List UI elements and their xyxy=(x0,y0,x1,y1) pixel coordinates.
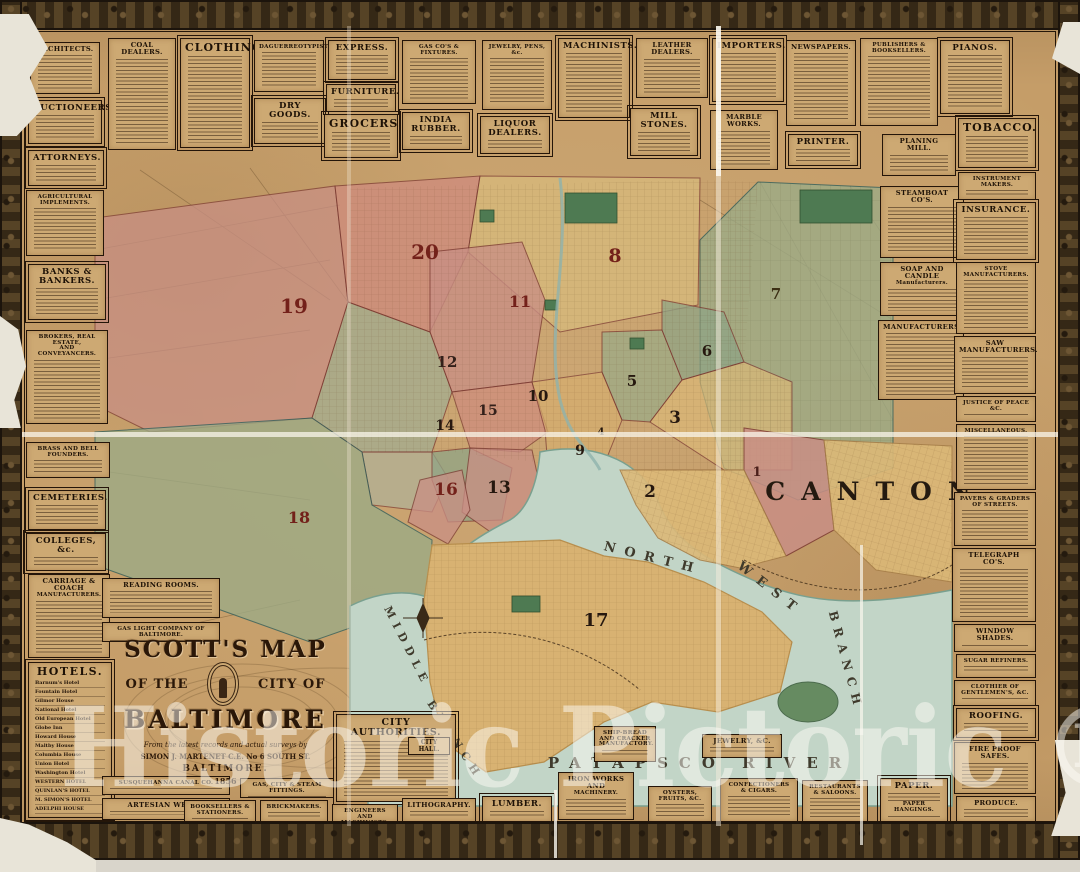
ward-number-19: 19 xyxy=(280,294,308,318)
ad-panel-title: PIANOS. xyxy=(945,44,1005,53)
ad-panel-title: READING ROOMS. xyxy=(107,582,215,589)
historic-baltimore-map-scan: 1234567891011121314151617181920 NORTHWES… xyxy=(0,0,1080,872)
ad-panel-title: STOVE MANUFACTURERS. xyxy=(961,266,1031,278)
ward-number-20: 20 xyxy=(411,240,439,264)
ad-panel-attorneys: ATTORNEYS. xyxy=(28,150,104,186)
ad-panel-title: JEWELRY, PENS, &c. xyxy=(487,44,547,56)
ad-panel-cemeteries: CEMETERIES. xyxy=(28,490,106,530)
ward-number-5: 5 xyxy=(627,372,637,390)
ad-panel-newspapers: NEWSPAPERS. xyxy=(786,40,856,126)
ad-panel-banks-bankers: BANKS & BANKERS. xyxy=(28,264,106,320)
ad-panel-colleges: COLLEGES, &c. xyxy=(26,533,106,571)
ad-panel-machinists: MACHINISTS. xyxy=(558,38,630,118)
ad-panel-title: INSURANCE. xyxy=(961,206,1031,215)
fold-crease-vertical-right-bright xyxy=(716,26,721,176)
ad-panel-title: DRY GOODS. xyxy=(259,102,321,120)
ward-number-2: 2 xyxy=(644,482,656,502)
ad-panel-title: LIQUOR DEALERS. xyxy=(485,120,545,138)
ad-panel-title: PLANING MILL. xyxy=(887,138,951,153)
ad-panel-title: PUBLISHERS & BOOKSELLERS. xyxy=(865,42,933,54)
ad-panel-title: AUCTIONEERS. xyxy=(33,104,97,113)
ad-panel-daguerreotypists: DAGUERREOTYPISTS. xyxy=(254,40,324,92)
ad-panel-title: NEWSPAPERS. xyxy=(791,44,851,51)
ad-panel-title: PAVERS & GRADERS OF STREETS. xyxy=(959,496,1031,508)
ad-panel-title: IMPORTERS. xyxy=(717,42,779,51)
ad-panel-agricultural-implements: AGRICULTURAL IMPLEMENTS. xyxy=(26,190,104,256)
ad-panel-title: TOBACCO. xyxy=(963,122,1031,134)
ad-panel-title: BANKS & BANKERS. xyxy=(33,268,101,286)
ad-panel-importers: IMPORTERS. xyxy=(712,38,784,102)
ad-panel-gas-cos-fixtures: GAS CO'S & FIXTURES. xyxy=(402,40,476,104)
decorative-frame-bottom xyxy=(0,822,1080,860)
ad-panel-express: EXPRESS. xyxy=(328,40,396,80)
ad-panel-dry-goods: DRY GOODS. xyxy=(254,98,326,144)
ad-panel-pianos: PIANOS. xyxy=(940,40,1010,114)
ad-panel-insurance: INSURANCE. xyxy=(956,202,1036,260)
ad-panel-title: CEMETERIES. xyxy=(33,494,101,503)
ad-panel-mill-stones: MILL STONES. xyxy=(630,108,698,156)
ad-panel-planing-mill: PLANING MILL. xyxy=(882,134,956,176)
decorative-frame-top xyxy=(0,0,1080,30)
ad-panel-title: STEAMBOAT CO'S. xyxy=(885,190,959,205)
ad-panel-title: Manufacturers. xyxy=(885,281,959,287)
ad-panel-title: COLLEGES, &c. xyxy=(31,537,101,555)
ad-panel-title: CARRIAGE & COACH xyxy=(33,578,105,593)
ward-number-13: 13 xyxy=(487,478,511,498)
ad-panel-publishers-booksellers: PUBLISHERS & BOOKSELLERS. xyxy=(860,38,938,126)
ward-number-9: 9 xyxy=(575,443,585,459)
ad-panel-jewelry-pens: JEWELRY, PENS, &c. xyxy=(482,40,552,110)
ad-panel-india-rubber: INDIA RUBBER. xyxy=(402,112,470,150)
ad-panel-title: INSTRUMENT MAKERS. xyxy=(963,176,1031,188)
ward-number-1: 1 xyxy=(752,465,761,480)
ad-panel-instrument-makers: INSTRUMENT MAKERS. xyxy=(958,172,1036,200)
ad-panel-pavers-graders: PAVERS & GRADERS OF STREETS. xyxy=(954,492,1036,546)
ward-number-11: 11 xyxy=(509,292,531,311)
ad-panel-carriage-coach: CARRIAGE & COACHMANUFACTURERS. xyxy=(28,574,110,658)
ad-panel-title: TELEGRAPH CO'S. xyxy=(957,552,1031,567)
ad-panel-leather-dealers: LEATHER DEALERS. xyxy=(636,38,708,98)
ward-number-8: 8 xyxy=(608,245,621,267)
ward-number-6: 6 xyxy=(702,342,712,360)
ad-panel-printer: PRINTER. xyxy=(788,134,858,166)
ad-panel-grocers: GROCERS. xyxy=(324,114,398,158)
ad-panel-title: HOTELS. xyxy=(33,666,107,678)
ad-panel-furniture: FURNITURE. xyxy=(326,84,396,112)
ad-panel-justice-of-peace: JUSTICE OF PEACE &C. xyxy=(956,396,1036,422)
ad-panel-title: SAW MANUFACTURERS. xyxy=(959,340,1031,355)
ad-panel-title: GAS CO'S & FIXTURES. xyxy=(407,44,471,56)
ad-panel-title: MILL STONES. xyxy=(635,112,693,130)
ad-panel-stove-manufacturers: STOVE MANUFACTURERS. xyxy=(956,262,1036,334)
ad-panel-title: LEATHER DEALERS. xyxy=(641,42,703,57)
ad-panel-steamboat-cos: STEAMBOAT CO'S. xyxy=(880,186,964,258)
ward-number-15: 15 xyxy=(478,403,497,419)
ward-number-18: 18 xyxy=(288,508,310,527)
ad-panel-title: DAGUERREOTYPISTS. xyxy=(259,44,319,50)
ad-panel-title: CLOTHING. xyxy=(185,42,245,54)
ward-number-3: 3 xyxy=(669,408,681,428)
ad-panel-soap-candle: SOAP AND CANDLEManufacturers. xyxy=(880,262,964,316)
ad-panel-title: ATTORNEYS. xyxy=(33,154,99,163)
ward-number-17: 17 xyxy=(583,610,608,631)
ad-panel-tobacco: TOBACCO. xyxy=(958,118,1036,168)
ad-panel-coal-dealers: COAL DEALERS. xyxy=(108,38,176,150)
watermark-text: Historic Pictoric ® xyxy=(60,682,1080,812)
ad-panel-reading-rooms: READING ROOMS. xyxy=(102,578,220,618)
ward-region-19 xyxy=(95,186,348,432)
ad-panel-title: AND CONVEYANCERS. xyxy=(31,346,103,358)
ad-panel-title: AGRICULTURAL IMPLEMENTS. xyxy=(31,194,99,206)
ad-panel-window-shades: WINDOW SHADES. xyxy=(954,624,1036,652)
ad-panel-title: MANUFACTURERS. xyxy=(33,593,105,599)
ad-panel-telegraph-cos: TELEGRAPH CO'S. xyxy=(952,548,1036,622)
ad-panel-title: SUGAR REFINERS. xyxy=(961,658,1031,664)
ad-panel-saw-manufacturers: SAW MANUFACTURERS. xyxy=(954,336,1036,394)
ad-panel-brokers: BROKERS, REAL ESTATE,AND CONVEYANCERS. xyxy=(26,330,108,424)
ad-panel-title: EXPRESS. xyxy=(333,44,391,53)
ad-panel-liquor-dealers: LIQUOR DEALERS. xyxy=(480,116,550,154)
ad-panel-title: FURNITURE. xyxy=(331,88,391,97)
map-title: SCOTT'S MAP xyxy=(124,636,327,663)
ward-number-10: 10 xyxy=(528,387,549,405)
canton-grid xyxy=(824,440,952,582)
ad-panel-title: MANUFACTURERS. xyxy=(883,324,959,331)
ward-number-7: 7 xyxy=(771,285,781,303)
ad-panel-title: COAL DEALERS. xyxy=(113,42,171,57)
ad-panel-brass-bell-founders: BRASS AND BELL FOUNDERS. xyxy=(26,442,110,478)
ad-panel-manufacturers: MANUFACTURERS. xyxy=(878,320,964,400)
ad-panel-title: INDIA RUBBER. xyxy=(407,116,465,134)
fold-crease-horizontal xyxy=(22,432,1058,437)
ad-panel-title: MACHINISTS. xyxy=(563,42,625,51)
ad-panel-title: PRINTER. xyxy=(793,138,853,147)
ad-panel-title: MARBLE WORKS. xyxy=(715,114,773,129)
ward-number-12: 12 xyxy=(437,353,458,371)
ad-panel-title: GROCERS. xyxy=(329,118,393,130)
ad-panel-title: SOAP AND CANDLE xyxy=(885,266,959,281)
ward-number-16: 16 xyxy=(434,480,458,500)
ad-panel-title: BRASS AND BELL FOUNDERS. xyxy=(31,446,105,458)
ad-panel-clothing: CLOTHING. xyxy=(180,38,250,148)
ad-panel-sugar-refiners: SUGAR REFINERS. xyxy=(956,654,1036,678)
ad-panel-title: WINDOW SHADES. xyxy=(959,628,1031,643)
ad-panel-title: JUSTICE OF PEACE &C. xyxy=(961,400,1031,412)
